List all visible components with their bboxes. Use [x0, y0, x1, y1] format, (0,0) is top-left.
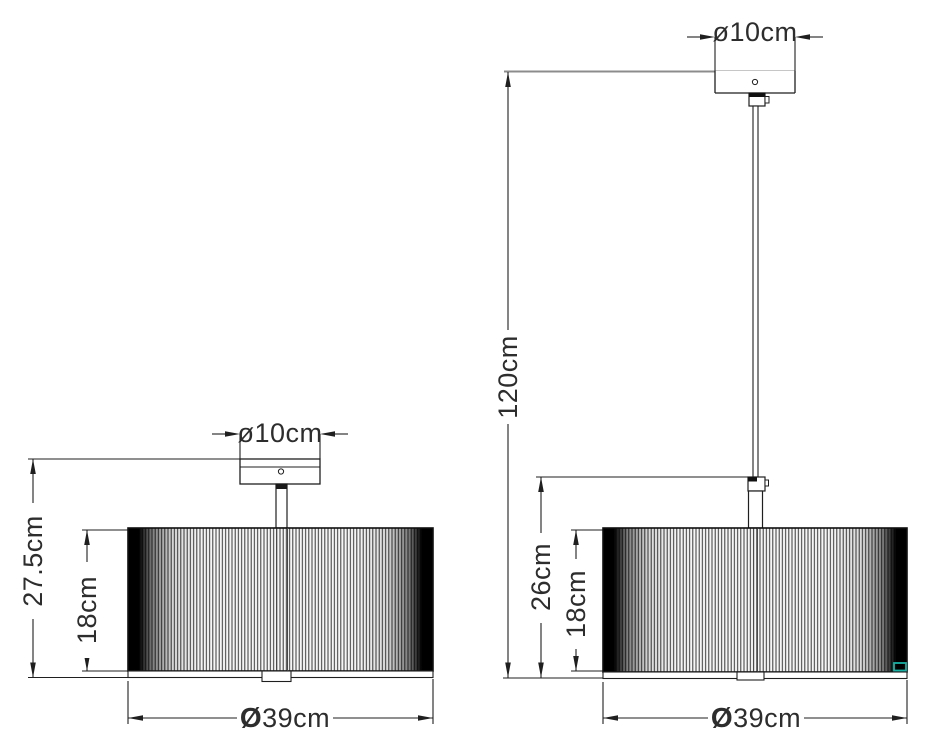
semi-flush-shade-height-label: 18cm	[72, 576, 102, 644]
semi-flush-shade	[128, 528, 433, 682]
pendant-rod	[748, 93, 769, 528]
pendant-shade	[603, 528, 907, 680]
canopy-screw-hole	[278, 469, 283, 474]
shade-bottom-finial	[262, 671, 291, 682]
semi-flush-total-height-label: 27.5cm	[18, 515, 48, 607]
dimension-drawing: ø10cm 27.5cm 18cm Ø39cm	[0, 0, 932, 748]
pendant-shade-height-label: 18cm	[561, 570, 591, 638]
shade-bottom-finial	[737, 672, 764, 680]
semi-flush-shade-diameter-label: Ø39cm	[240, 702, 330, 733]
drawing-canvas: ø10cm 27.5cm 18cm Ø39cm	[0, 0, 932, 748]
semi-flush-lamp-view: ø10cm 27.5cm 18cm Ø39cm	[16, 418, 433, 733]
pendant-canopy-diameter-label: ø10cm	[712, 17, 797, 47]
pendant-lamp-view: ø10cm 120cm 26cm 18cm Ø39cm	[491, 16, 907, 733]
pendant-canopy	[715, 71, 795, 93]
canopy-screw-hole	[752, 79, 757, 84]
pendant-drop-height-label: 120cm	[493, 335, 523, 419]
pendant-body-height-label: 26cm	[526, 543, 556, 611]
semi-flush-stem	[276, 484, 287, 528]
pendant-shade-diameter-label: Ø39cm	[711, 702, 801, 733]
semi-flush-canopy	[240, 459, 320, 484]
semi-flush-canopy-diameter-label: ø10cm	[237, 418, 322, 448]
